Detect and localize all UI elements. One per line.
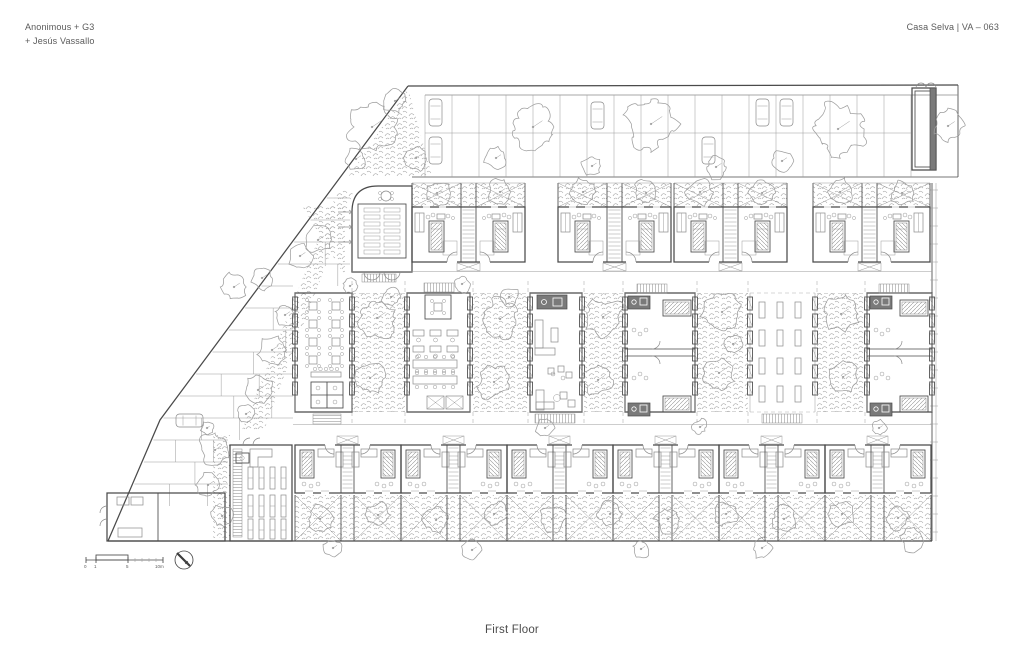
tree <box>343 278 358 293</box>
tree <box>455 276 471 293</box>
scale-tick-label: 1 <box>94 564 97 569</box>
stair-core <box>723 207 738 262</box>
housing-unit <box>564 443 607 495</box>
housing-unit <box>480 205 522 264</box>
utility-room <box>230 438 292 541</box>
doormat <box>719 263 742 271</box>
scale-tick-label: 0 <box>84 564 87 569</box>
doormat <box>443 436 464 444</box>
accessible-unit-block <box>623 284 698 416</box>
car <box>780 99 793 126</box>
parking-stall-lines <box>425 95 911 177</box>
unit-garden <box>674 183 787 207</box>
doormat <box>549 436 570 444</box>
parked-car <box>176 414 203 427</box>
housing-unit <box>458 443 501 495</box>
housing-unit <box>776 443 819 495</box>
stair-core <box>461 207 476 262</box>
scale-tick-label: 10m <box>155 564 164 569</box>
housing-unit <box>613 436 719 495</box>
site-plan: 01510m <box>84 83 965 569</box>
tree <box>691 418 706 434</box>
tree <box>633 541 649 558</box>
car <box>591 102 604 129</box>
unit-garden <box>813 183 930 207</box>
communal-row <box>293 281 935 425</box>
lounge-pavilion <box>528 293 585 423</box>
housing-unit <box>558 183 671 271</box>
doormat <box>867 436 888 444</box>
housing-unit <box>401 436 507 495</box>
doormat <box>603 263 626 271</box>
car <box>756 99 769 126</box>
housing-unit <box>507 436 613 495</box>
housing-unit <box>825 436 931 495</box>
tree <box>220 272 246 298</box>
doormat <box>457 263 480 271</box>
housing-unit <box>881 205 923 264</box>
scale-bar: 01510m <box>84 555 164 569</box>
parking-area <box>412 83 958 177</box>
doormat <box>858 263 881 271</box>
car <box>429 137 442 164</box>
courtyard-garden <box>817 281 865 424</box>
housing-unit <box>670 443 713 495</box>
doormat <box>655 436 676 444</box>
housing-unit <box>626 205 668 264</box>
unit-garden <box>558 183 671 207</box>
north-arrow-icon <box>175 551 193 569</box>
tree <box>872 419 887 435</box>
tree <box>323 541 342 557</box>
tree <box>707 155 727 179</box>
housing-unit <box>674 183 787 271</box>
open-pavilion <box>748 293 818 423</box>
housing-unit <box>352 443 395 495</box>
tree <box>581 157 601 175</box>
housing-unit <box>295 436 401 495</box>
scale-tick-label: 5 <box>126 564 129 569</box>
housing-unit <box>719 436 825 495</box>
housing-unit <box>882 443 925 495</box>
courtyard-garden <box>473 281 528 424</box>
tree <box>200 422 213 435</box>
doormat <box>761 436 782 444</box>
tree <box>934 108 965 142</box>
car <box>429 99 442 126</box>
tree <box>251 268 273 291</box>
car <box>702 137 715 164</box>
tree <box>772 151 794 173</box>
stair-core <box>862 207 877 262</box>
tree <box>813 101 867 158</box>
refuse-structure <box>912 83 936 170</box>
housing-unit <box>742 205 784 264</box>
tree <box>484 146 506 169</box>
stair-core <box>607 207 622 262</box>
car <box>176 414 203 427</box>
floor-plan-drawing: 01510m <box>0 0 1024 663</box>
accessible-unit-block <box>865 284 935 416</box>
housing-unit <box>412 183 525 271</box>
lower-housing-row <box>295 436 931 541</box>
tree <box>462 539 482 560</box>
doormat <box>337 436 358 444</box>
drawing-caption: First Floor <box>0 624 1024 636</box>
tree <box>623 99 681 153</box>
study-hall <box>405 283 473 412</box>
